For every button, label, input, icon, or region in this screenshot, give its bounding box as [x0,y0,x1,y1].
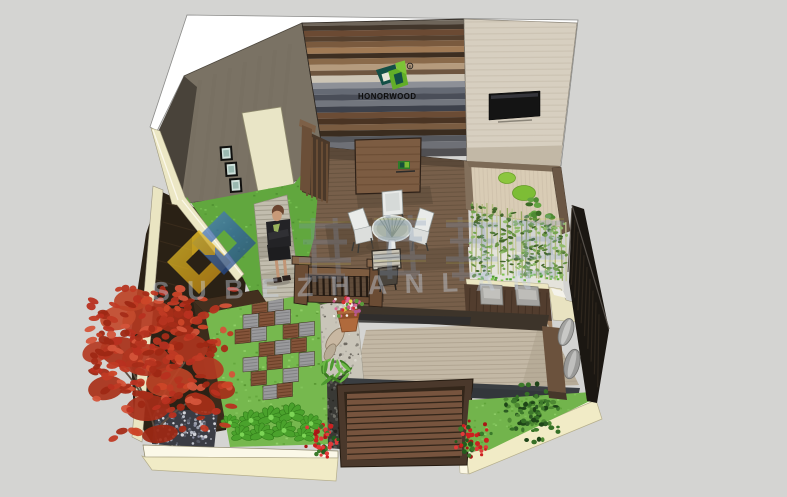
svg-text:R: R [409,64,412,69]
svg-text:HONORWOOD: HONORWOOD [358,92,417,101]
